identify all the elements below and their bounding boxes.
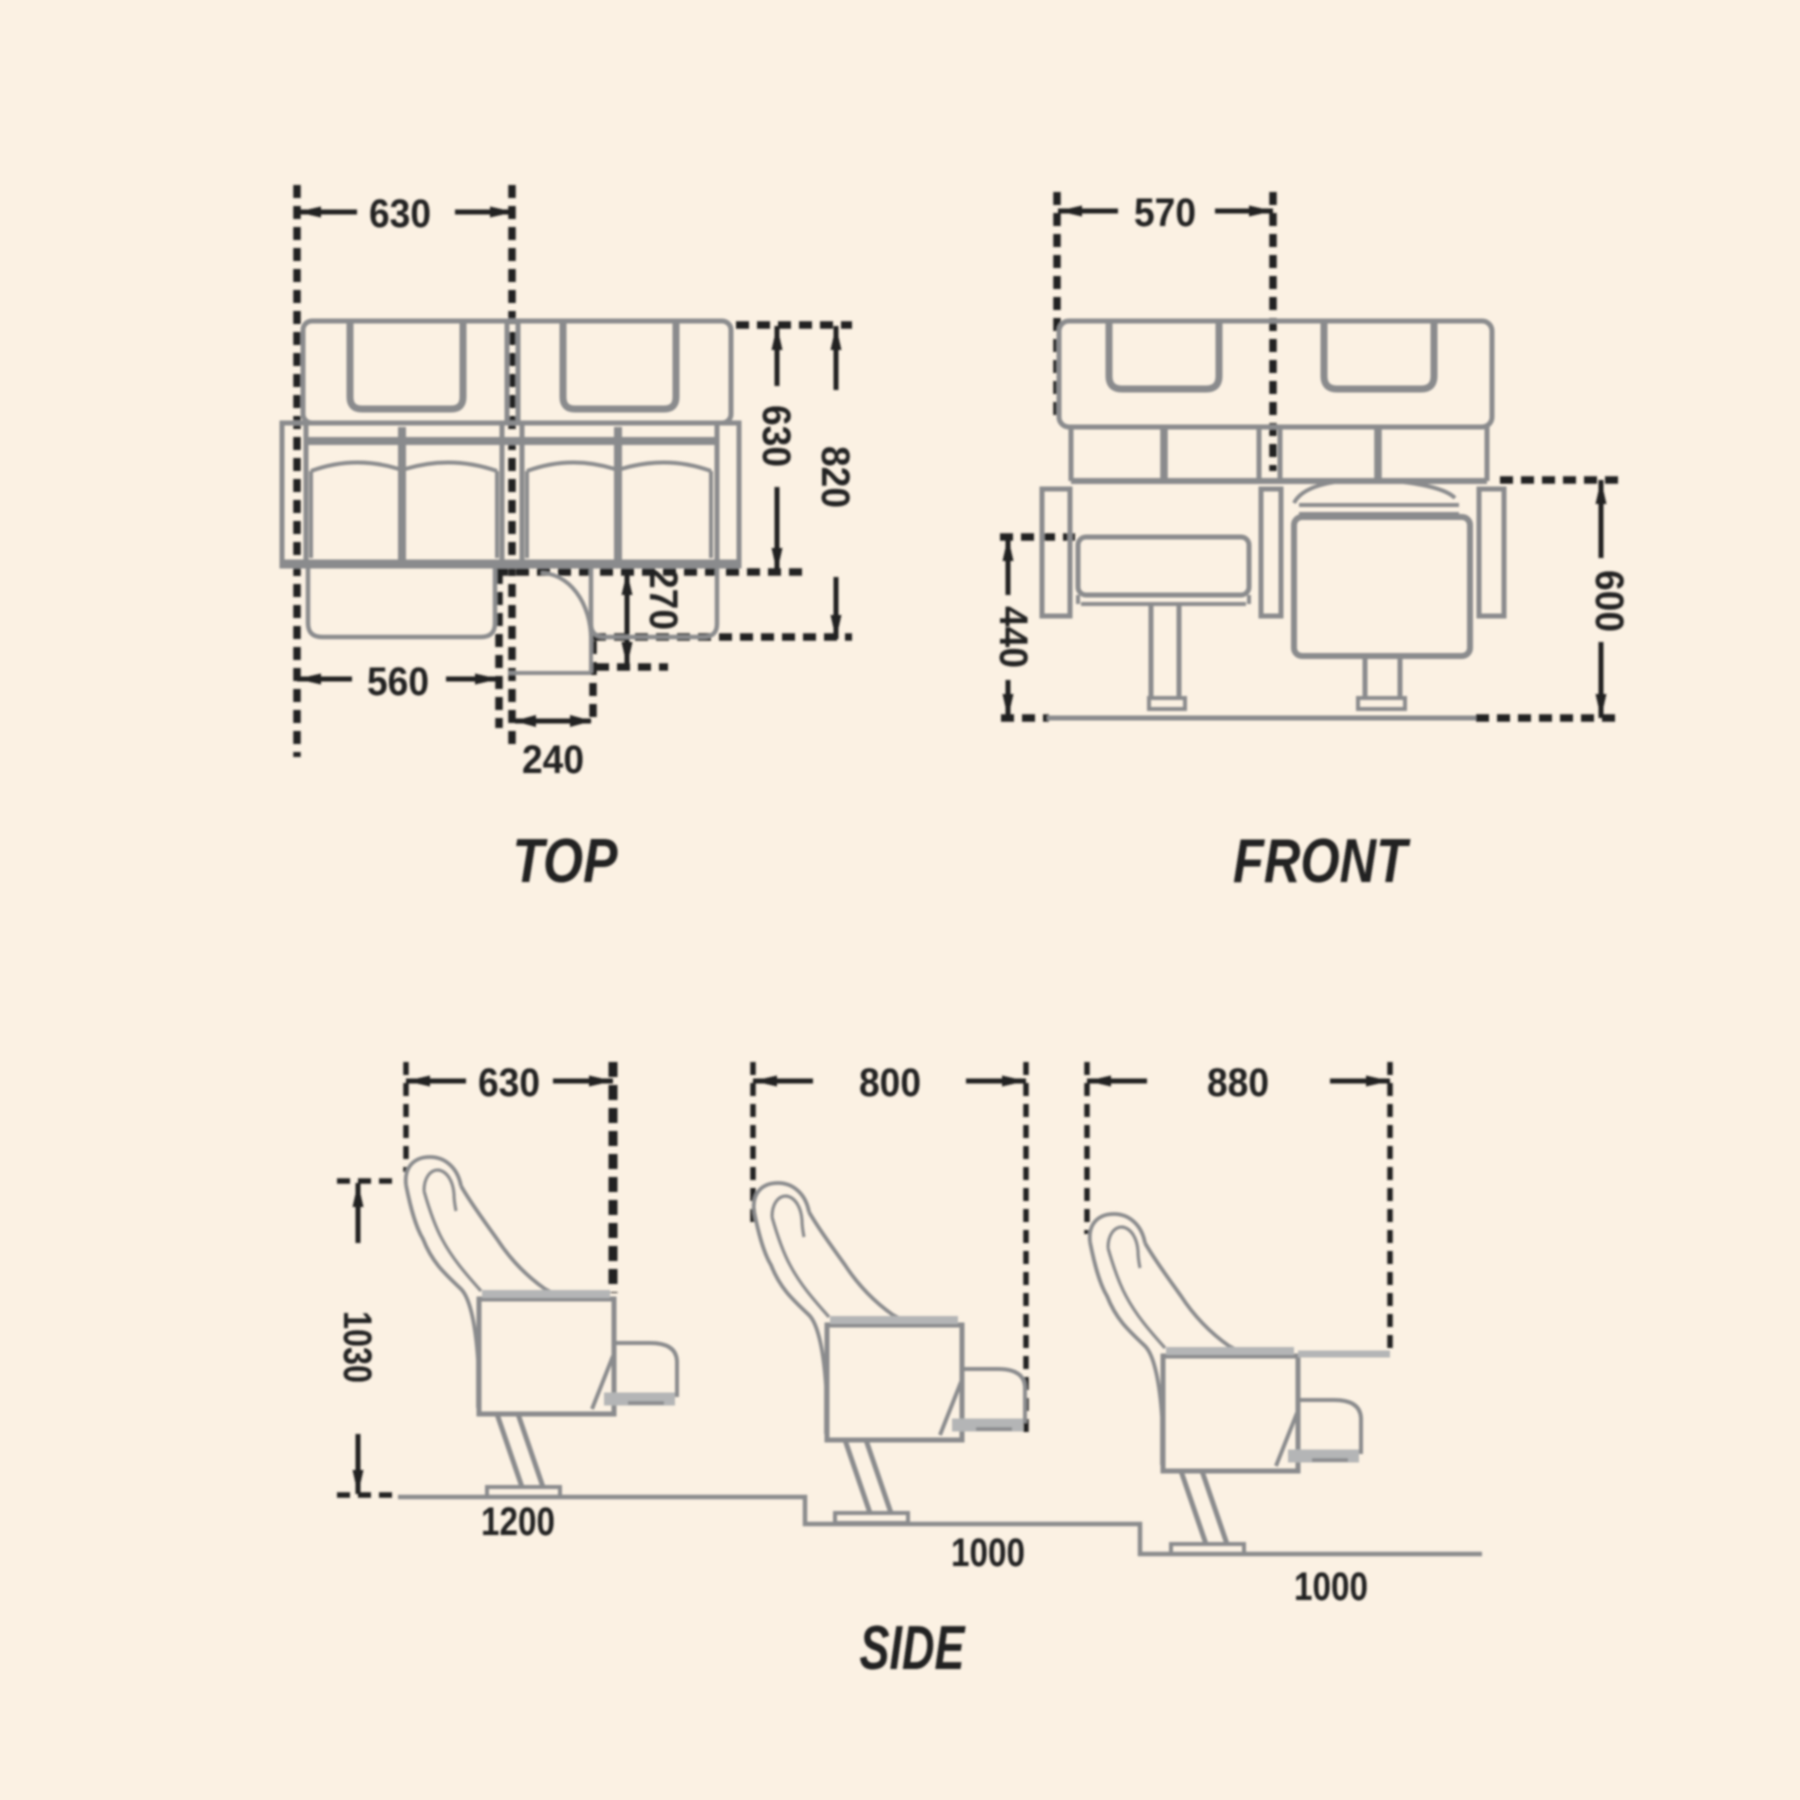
svg-text:1000: 1000 — [1294, 1565, 1368, 1609]
svg-text:820: 820 — [813, 446, 857, 508]
svg-text:1200: 1200 — [481, 1500, 555, 1544]
svg-text:1000: 1000 — [951, 1531, 1025, 1575]
svg-text:270: 270 — [641, 568, 685, 630]
svg-text:630: 630 — [369, 192, 431, 236]
svg-text:TOP: TOP — [513, 827, 619, 896]
svg-text:440: 440 — [991, 606, 1035, 668]
svg-text:1030: 1030 — [335, 1311, 379, 1383]
svg-text:600: 600 — [1587, 570, 1631, 632]
svg-text:FRONT: FRONT — [1233, 827, 1411, 896]
svg-text:240: 240 — [522, 738, 584, 782]
svg-text:570: 570 — [1134, 191, 1196, 235]
svg-text:630: 630 — [754, 405, 798, 467]
svg-text:SIDE: SIDE — [860, 1614, 966, 1683]
svg-text:630: 630 — [478, 1061, 540, 1105]
svg-text:560: 560 — [367, 660, 429, 704]
svg-text:800: 800 — [859, 1061, 921, 1105]
svg-text:880: 880 — [1207, 1061, 1269, 1105]
